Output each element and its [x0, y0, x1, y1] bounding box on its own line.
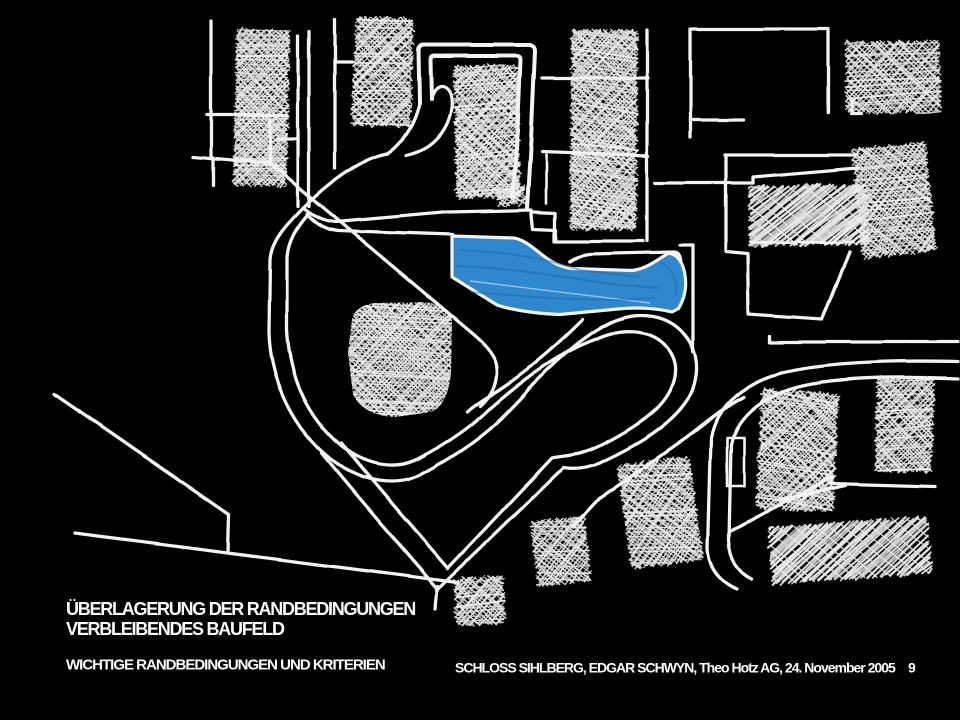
- svg-text:ÜBERLAGERUNG DER RANDBEDINGUNG: ÜBERLAGERUNG DER RANDBEDINGUNGEN: [66, 599, 415, 619]
- svg-text:SCHLOSS SIHLBERG, EDGAR SCHWYN: SCHLOSS SIHLBERG, EDGAR SCHWYN, Theo Hot…: [455, 660, 896, 676]
- svg-text:9: 9: [908, 660, 916, 676]
- svg-text:VERBLEIBENDES BAUFELD: VERBLEIBENDES BAUFELD: [66, 619, 285, 639]
- svg-text:WICHTIGE RANDBEDINGUNGEN UND: WICHTIGE RANDBEDINGUNGEN UND KRITERIEN: [66, 657, 385, 674]
